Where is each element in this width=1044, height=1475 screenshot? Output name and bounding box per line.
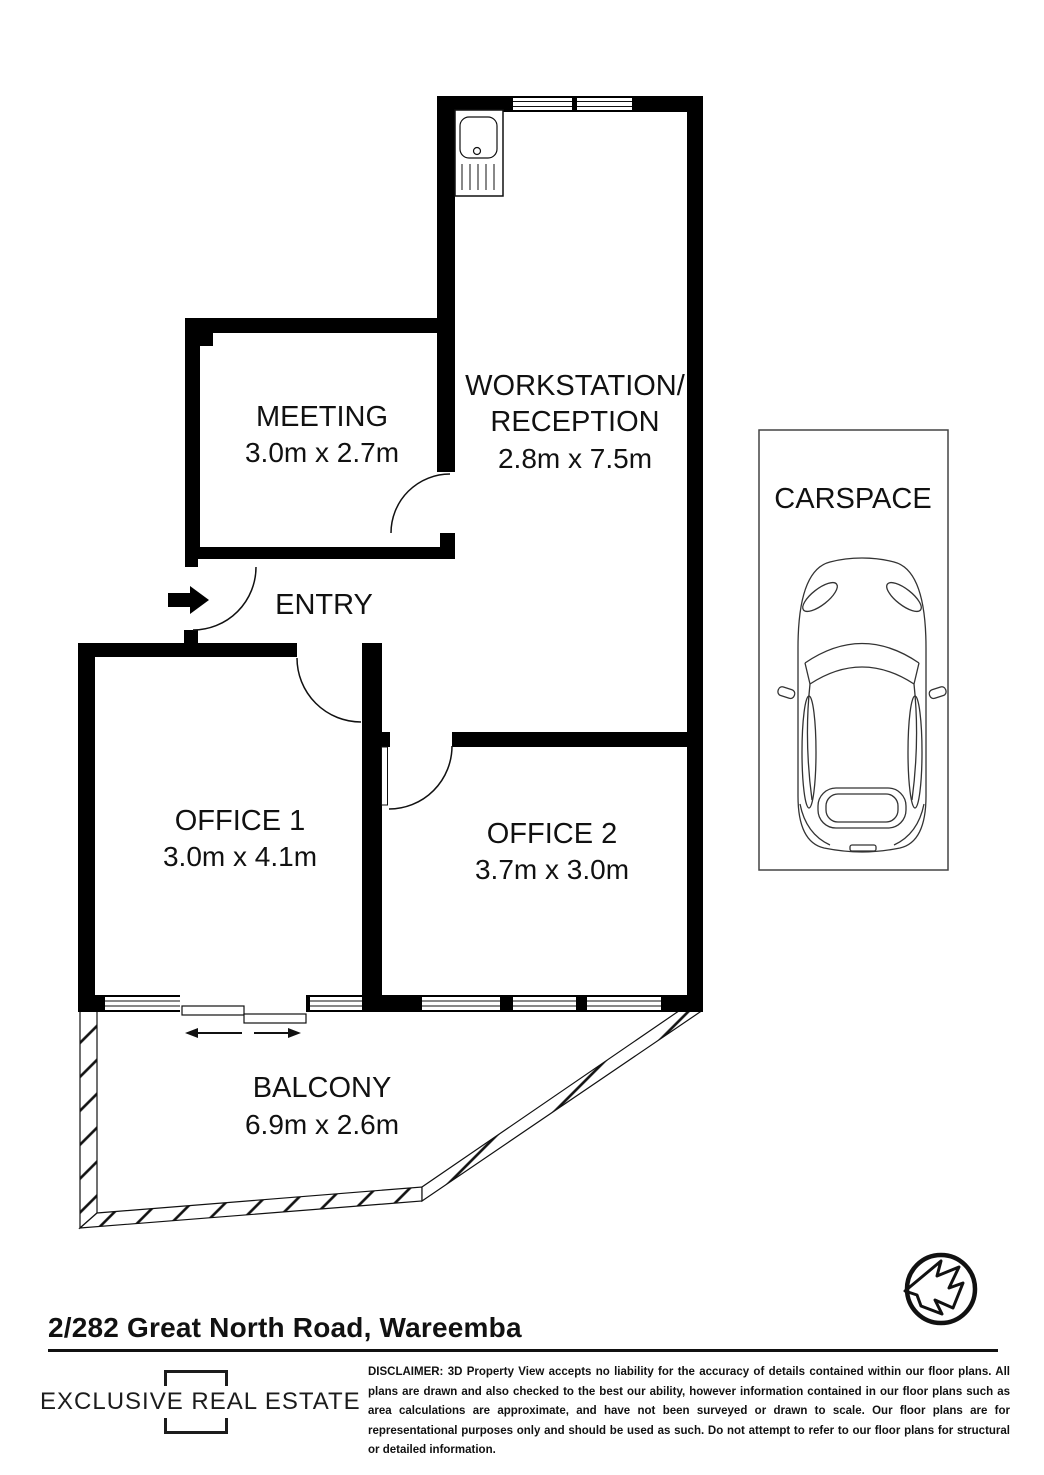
logo-bracket-top-icon: [164, 1370, 228, 1386]
room-label-workstation-line1: WORKSTATION/: [465, 370, 686, 402]
floorplan-drawing: MEETING 3.0m x 2.7m WORKSTATION/ RECEPTI…: [0, 0, 1044, 1475]
room-label-carspace: CARSPACE: [774, 483, 931, 515]
room-label-office2: OFFICE 2: [487, 818, 618, 850]
room-dims-balcony: 6.9m x 2.6m: [245, 1109, 399, 1140]
kitchen-sink-icon: [455, 110, 503, 196]
room-label-entry: ENTRY: [275, 589, 373, 621]
north-arrow-icon: [905, 1255, 975, 1323]
room-dims-meeting: 3.0m x 2.7m: [245, 437, 399, 468]
door-arcs: [193, 474, 452, 809]
logo-bracket-bottom-icon: [164, 1418, 228, 1434]
agency-logo-text: EXCLUSIVE REAL ESTATE: [40, 1388, 352, 1416]
room-dims-workstation: 2.8m x 7.5m: [498, 443, 652, 474]
entry-direction-arrow-icon: [168, 586, 209, 614]
car-icon: [777, 558, 947, 852]
room-label-workstation-line2: RECEPTION: [490, 406, 659, 438]
property-address: 2/282 Great North Road, Wareemba: [48, 1312, 522, 1344]
divider-line: [48, 1349, 998, 1352]
agency-logo: EXCLUSIVE REAL ESTATE: [40, 1366, 352, 1438]
floorplan-page: MEETING 3.0m x 2.7m WORKSTATION/ RECEPTI…: [0, 0, 1044, 1475]
room-label-office1: OFFICE 1: [175, 805, 306, 837]
sliding-door-direction-arrows-icon: [185, 1028, 301, 1038]
room-label-meeting: MEETING: [256, 401, 388, 433]
room-dims-office1: 3.0m x 4.1m: [163, 841, 317, 872]
disclaimer-text: DISCLAIMER: 3D Property View accepts no …: [368, 1363, 1010, 1461]
room-label-balcony: BALCONY: [253, 1072, 392, 1104]
room-dims-office2: 3.7m x 3.0m: [475, 854, 629, 885]
